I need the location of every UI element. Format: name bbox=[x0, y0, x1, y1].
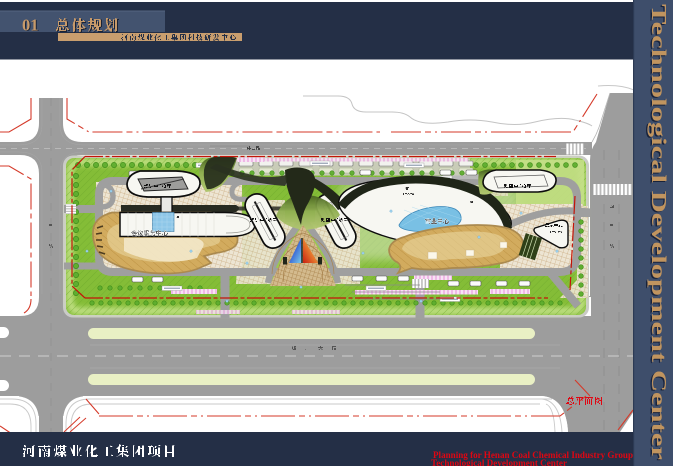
svg-text:01: 01 bbox=[22, 15, 39, 34]
svg-text:Technological Development Cent: Technological Development Center bbox=[647, 4, 671, 460]
svg-text:Technological Development Cent: Technological Development Center bbox=[431, 458, 567, 466]
